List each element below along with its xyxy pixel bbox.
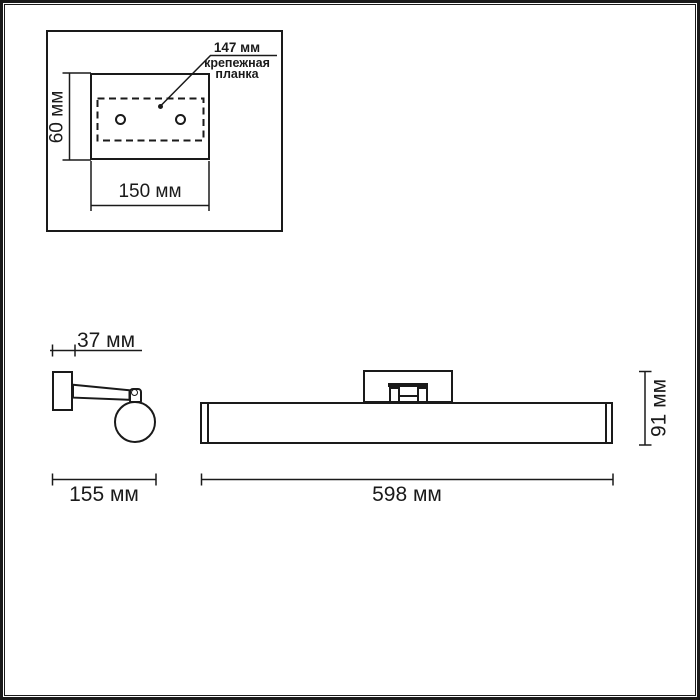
- dim-60mm-label: 60 мм: [48, 90, 67, 143]
- dim-37mm-label: 37 мм: [77, 330, 135, 351]
- dim-150mm-label: 150 мм: [118, 182, 181, 201]
- screw-hole-right: [175, 114, 186, 125]
- dim-598mm-label: 598 мм: [372, 484, 442, 505]
- bracket-arm: [73, 385, 130, 400]
- leader-dot: [158, 104, 163, 109]
- swivel-bracket-right-upright: [417, 387, 428, 404]
- label-mounting-bar-line2: планка: [204, 69, 270, 80]
- mounting-bar-dashed-outline: [98, 99, 204, 141]
- technical-drawing-canvas: 147 мм крепежная планка 60 мм 150 мм 37 …: [0, 0, 700, 700]
- label-holes-spacing: 147 мм: [214, 41, 260, 55]
- lamp-bar-end-cap-right: [605, 403, 607, 442]
- swivel-bracket-axle: [400, 395, 417, 397]
- dim-155mm-label: 155 мм: [69, 484, 139, 505]
- swivel-bracket-left-upright: [389, 387, 400, 404]
- lamp-bar-end-cap-left: [207, 403, 209, 442]
- dim-91mm-label: 91 мм: [649, 379, 670, 437]
- label-mounting-bar-name: крепежная планка: [204, 58, 270, 80]
- screw-hole-left: [115, 114, 126, 125]
